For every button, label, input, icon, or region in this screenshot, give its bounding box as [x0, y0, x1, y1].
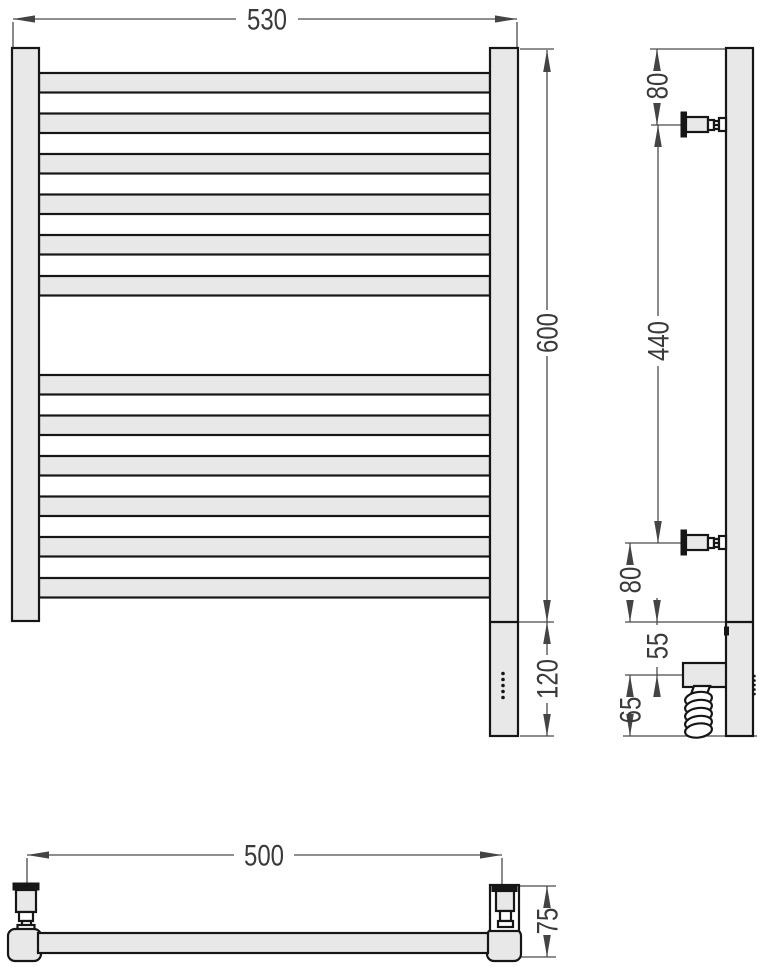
dim-label-530: 530 [247, 2, 287, 36]
top-tube [38, 933, 488, 953]
rung [39, 235, 490, 255]
side-post [726, 48, 753, 736]
dim-500: 500 [27, 838, 502, 884]
rung [39, 375, 490, 395]
arrow-up-icon [543, 50, 551, 72]
dim-440: 440 [641, 125, 675, 543]
arrow-right-icon [480, 851, 502, 858]
dim-80-lower: 80 [613, 543, 647, 622]
rung [39, 195, 490, 215]
arrow-up-icon [543, 886, 551, 908]
dim-label-80-lower: 80 [613, 567, 647, 594]
wall-bracket-upper [681, 112, 726, 137]
dim-label-55: 55 [640, 633, 674, 660]
arrow-down-icon [543, 600, 551, 622]
weld-mark [725, 627, 729, 635]
rungs [39, 73, 490, 598]
arrow-right-icon [495, 15, 517, 22]
arrow-down-icon [543, 714, 551, 736]
rung [39, 578, 490, 598]
rung [39, 497, 490, 517]
rung [39, 537, 490, 557]
arrow-left-icon [13, 15, 35, 22]
heater-element-box [683, 663, 727, 687]
wall-bracket-lower [681, 530, 726, 555]
power-cable-coil [684, 686, 713, 739]
left-post [12, 48, 39, 621]
arrow-left-icon [27, 851, 49, 858]
arrow-up-icon [653, 49, 661, 71]
arrow-up-icon [543, 622, 551, 644]
dim-530: 530 [13, 2, 517, 47]
dim-label-500: 500 [244, 838, 284, 872]
arrow-up-icon [626, 675, 634, 697]
dim-65: 65 [613, 675, 647, 736]
rung [39, 154, 490, 174]
dim-label-600: 600 [530, 313, 564, 353]
arrow-down-icon [653, 103, 661, 125]
dim-label-440: 440 [641, 321, 675, 361]
rung [39, 114, 490, 134]
arrow-down-icon [543, 935, 551, 957]
rung [39, 416, 490, 436]
arrow-up-icon [626, 543, 634, 565]
side-view: 80 440 80 55 [613, 48, 757, 739]
arrow-up-icon [653, 675, 661, 697]
dim-label-80-top: 80 [640, 73, 674, 100]
dim-label-120: 120 [530, 659, 564, 699]
arrow-down-icon [626, 600, 634, 622]
towel-rail-technical-drawing: 530 600 120 [0, 0, 766, 970]
corner-elbow-left [8, 929, 41, 961]
plan-bracket-right [490, 885, 519, 931]
arrow-down-icon [654, 521, 662, 543]
dim-label-65: 65 [613, 697, 647, 724]
dim-label-75: 75 [530, 908, 564, 935]
dim-120: 120 [518, 622, 564, 736]
corner-elbow-right [487, 929, 521, 961]
dim-80-top: 80 [640, 49, 674, 125]
dim-75: 75 [519, 886, 564, 957]
arrow-down-icon [653, 600, 661, 622]
plan-bracket-left [13, 883, 39, 931]
rung [39, 276, 490, 296]
dim-600: 600 [520, 49, 564, 622]
top-view: 500 75 [8, 838, 564, 961]
front-view: 530 600 120 [12, 2, 564, 736]
arrow-up-icon [654, 125, 662, 147]
rung [39, 73, 490, 93]
dim-55: 55 [640, 598, 674, 697]
right-post [490, 48, 518, 736]
rung [39, 456, 490, 476]
